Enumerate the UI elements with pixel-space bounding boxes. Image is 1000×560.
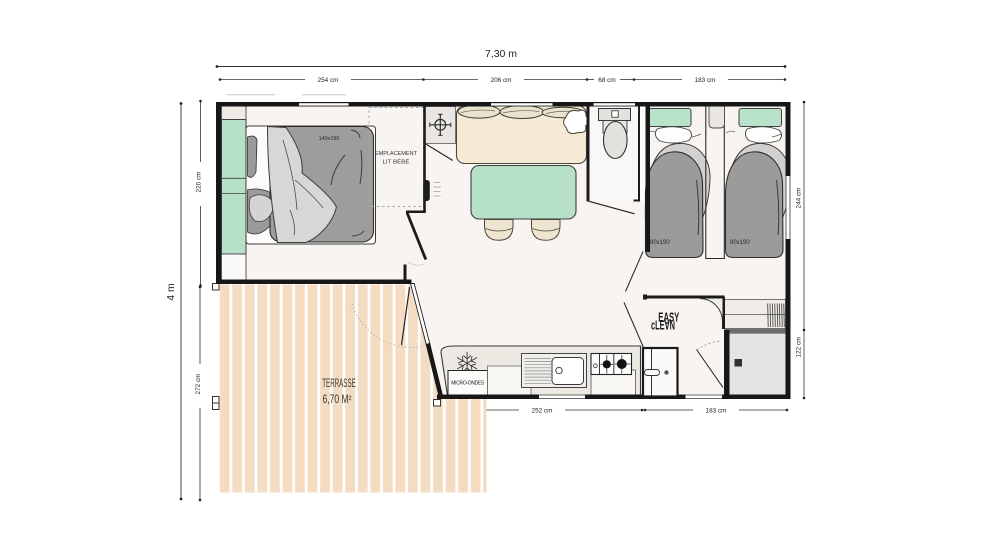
svg-text:4 m: 4 m xyxy=(165,283,177,301)
svg-text:TERRASSE: TERRASSE xyxy=(322,378,356,390)
svg-text:EMPLACEMENT: EMPLACEMENT xyxy=(375,151,418,157)
svg-text:6,70 M²: 6,70 M² xyxy=(323,394,352,406)
svg-text:80x190: 80x190 xyxy=(730,240,750,246)
svg-text:254 cm: 254 cm xyxy=(318,77,339,84)
svg-text:252 cm: 252 cm xyxy=(532,408,553,415)
svg-text:206 cm: 206 cm xyxy=(491,77,512,84)
svg-text:80x190: 80x190 xyxy=(650,240,670,246)
svg-text:244 cm: 244 cm xyxy=(796,188,803,209)
svg-text:220 cm: 220 cm xyxy=(196,172,203,193)
svg-text:272 cm: 272 cm xyxy=(195,374,202,395)
svg-text:140x190: 140x190 xyxy=(319,136,340,142)
svg-text:183 cm: 183 cm xyxy=(706,408,727,415)
svg-text:MICRO-ONDES: MICRO-ONDES xyxy=(451,381,485,387)
svg-text:7,30 m: 7,30 m xyxy=(485,48,517,60)
svg-text:cLE∀N: cLE∀N xyxy=(651,318,675,333)
svg-text:LIT BÉBÉ: LIT BÉBÉ xyxy=(383,159,410,166)
svg-text:122 cm: 122 cm xyxy=(796,337,803,358)
svg-text:68 cm: 68 cm xyxy=(598,77,615,84)
svg-text:183 cm: 183 cm xyxy=(695,77,716,84)
